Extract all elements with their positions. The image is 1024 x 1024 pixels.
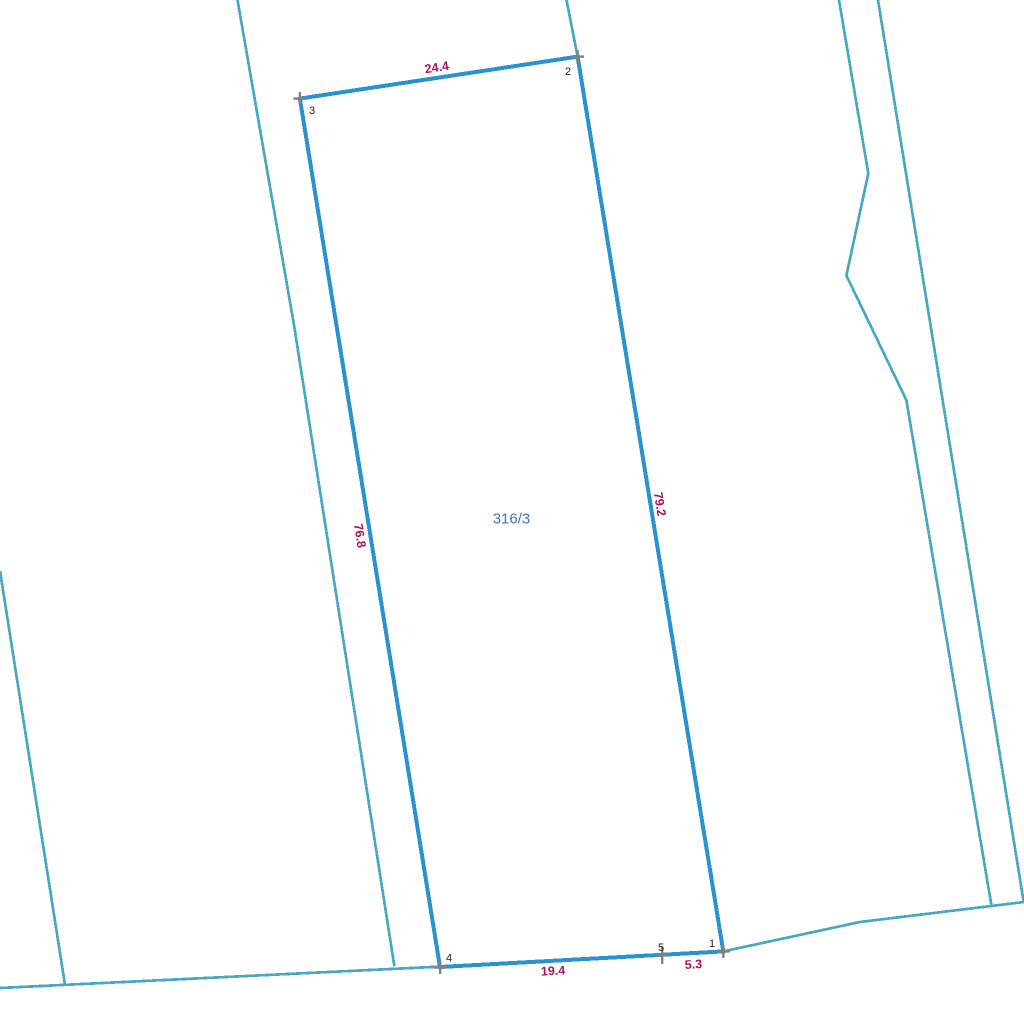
svg-text:19.4: 19.4 xyxy=(541,963,566,978)
svg-text:316/3: 316/3 xyxy=(493,511,531,528)
svg-text:2: 2 xyxy=(565,66,571,78)
svg-text:5.3: 5.3 xyxy=(684,957,702,972)
svg-text:3: 3 xyxy=(309,105,315,117)
svg-text:5: 5 xyxy=(658,942,664,954)
svg-text:4: 4 xyxy=(446,953,452,965)
svg-text:1: 1 xyxy=(709,938,715,950)
